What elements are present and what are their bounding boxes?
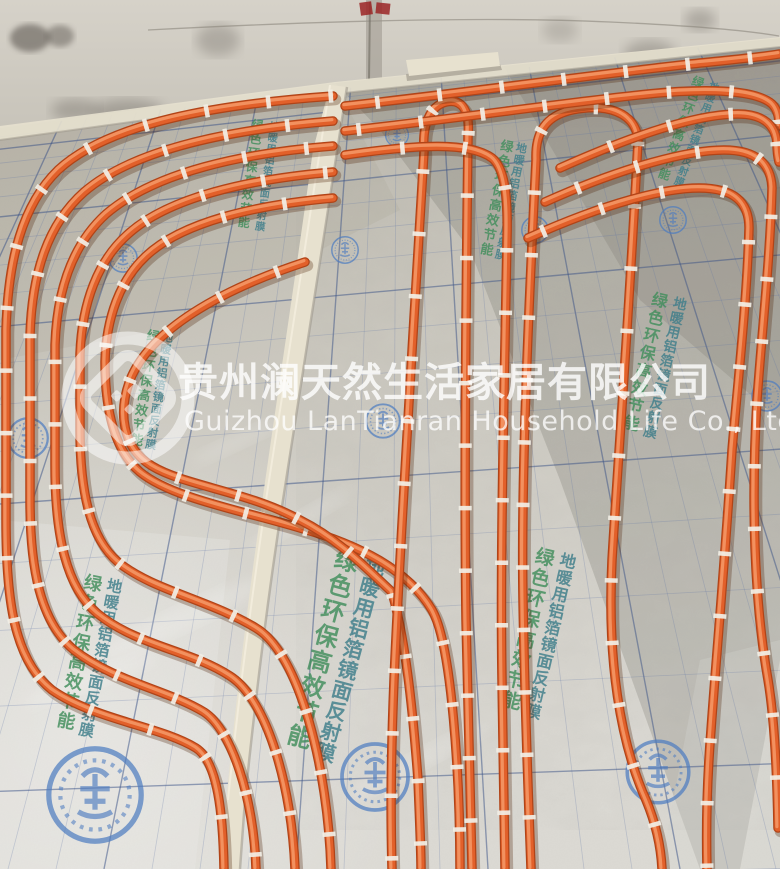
heating-pipe [55,146,333,869]
heating-pipe [531,192,752,869]
heating-pipe [545,150,778,828]
photo-underfloor-heating-installation: 绿色环保高效节能 地暖用铝箔镜面反射膜 绿色环保高效节能 地暖用铝箔镜面反射膜 … [0,0,780,869]
heating-pipe [525,111,664,869]
pipe-circuit-layer [0,0,780,869]
heating-pipe [545,150,778,828]
heating-pipes [5,53,780,869]
heating-pipe [348,150,510,869]
pipe-fixing-clips [545,150,778,828]
heating-pipe [55,146,333,869]
heating-pipe [544,149,777,827]
pipe-fixing-clips [55,146,333,869]
heating-pipe [58,150,336,869]
